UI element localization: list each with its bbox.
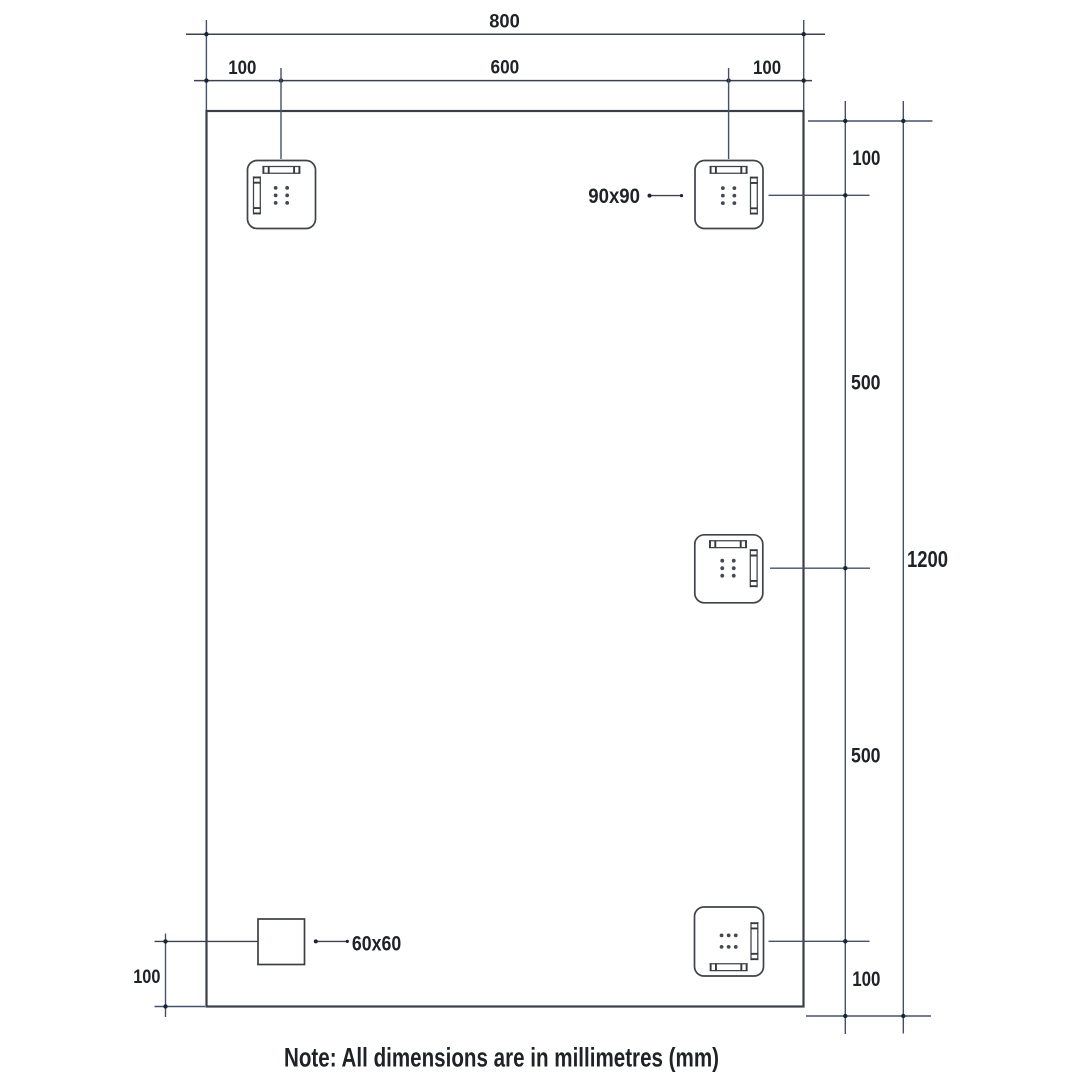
svg-text:100: 100	[753, 57, 781, 79]
svg-text:500: 500	[851, 743, 881, 767]
svg-text:100: 100	[133, 966, 160, 988]
svg-text:90x90: 90x90	[588, 185, 640, 208]
svg-text:100: 100	[228, 57, 256, 79]
svg-text:100: 100	[852, 967, 880, 991]
svg-text:100: 100	[852, 146, 880, 170]
svg-text:600: 600	[491, 57, 520, 79]
svg-text:Note: All dimensions are in mi: Note: All dimensions are in millimetres …	[284, 1043, 719, 1073]
svg-text:800: 800	[489, 10, 520, 32]
svg-text:1200: 1200	[907, 546, 948, 572]
svg-text:500: 500	[851, 370, 881, 394]
svg-text:60x60: 60x60	[352, 932, 401, 955]
